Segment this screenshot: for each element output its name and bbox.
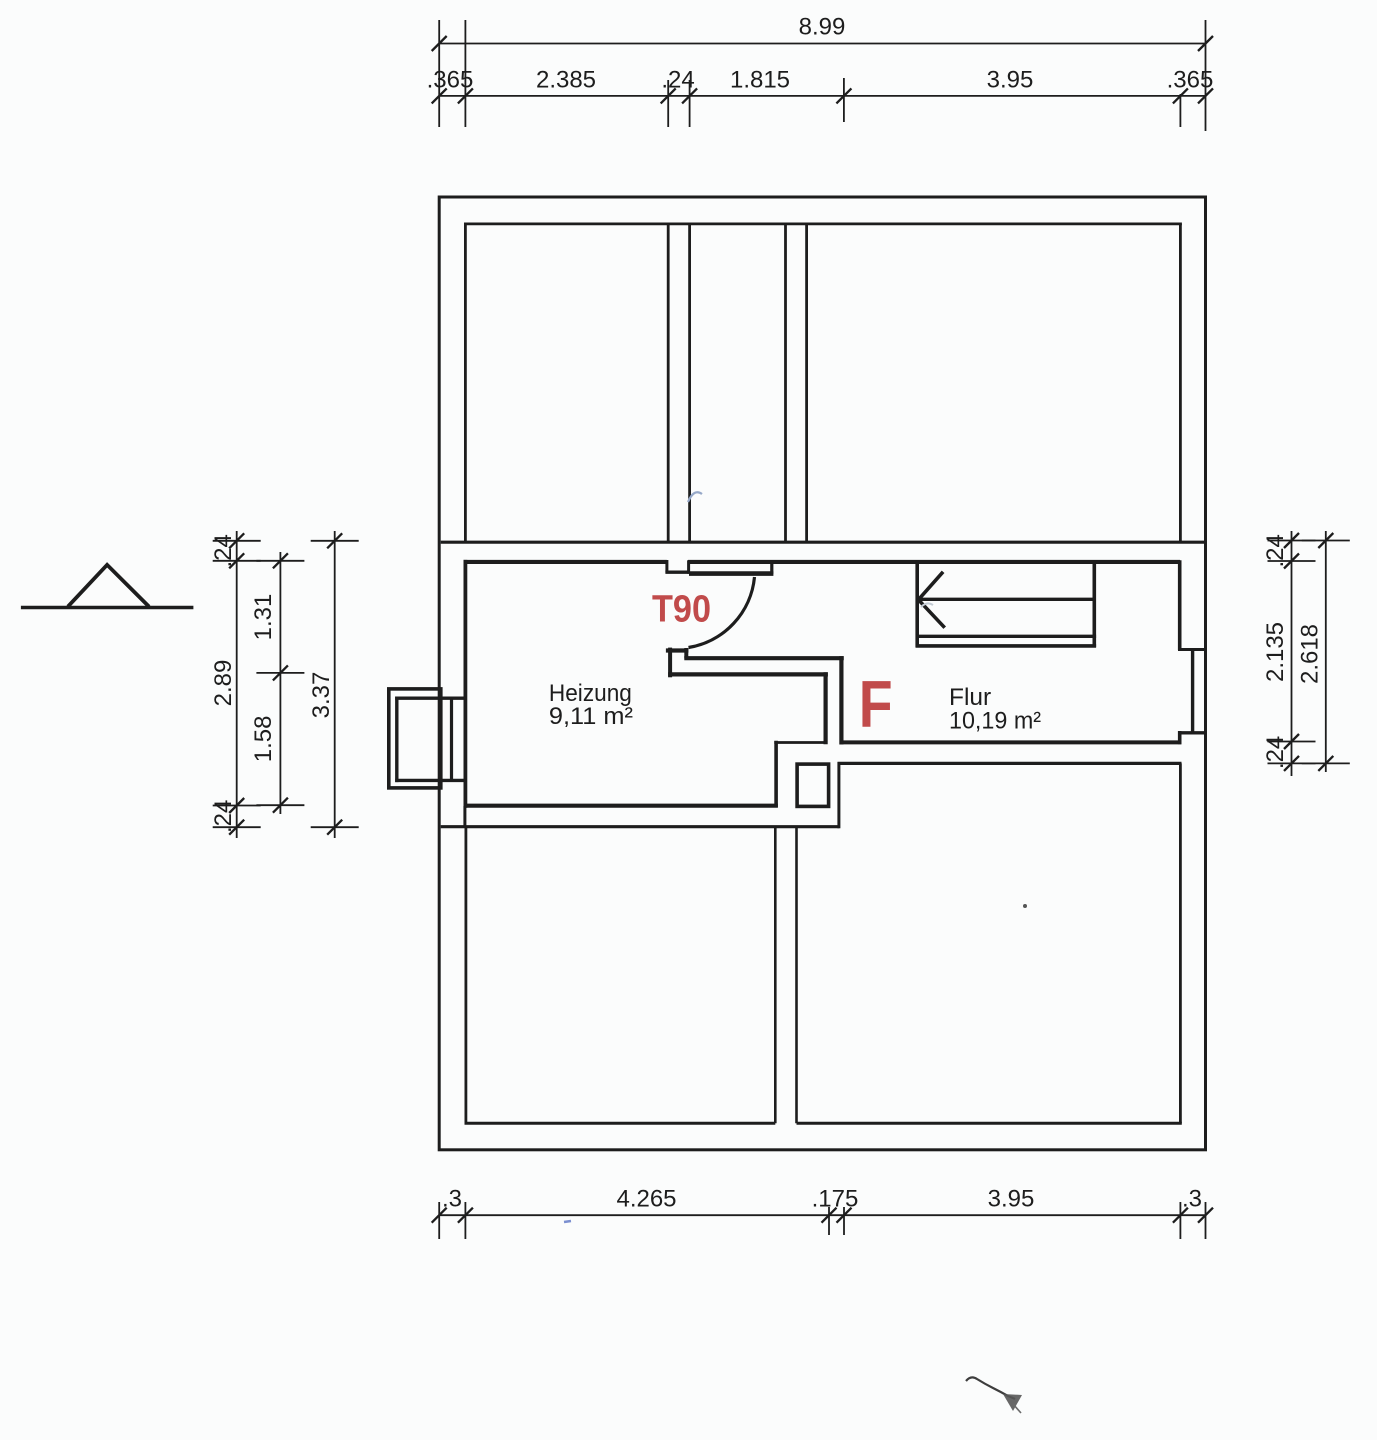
svg-text:2.385: 2.385: [536, 67, 596, 94]
svg-text:.175: .175: [812, 1186, 859, 1213]
svg-text:.365: .365: [1167, 67, 1214, 94]
svg-text:1.815: 1.815: [730, 67, 790, 94]
svg-text:8.99: 8.99: [799, 14, 846, 41]
svg-text:3.95: 3.95: [988, 1186, 1035, 1213]
svg-text:1.31: 1.31: [250, 594, 277, 641]
svg-text:2.135: 2.135: [1262, 622, 1289, 682]
svg-text:3.95: 3.95: [987, 67, 1034, 94]
svg-text:2.89: 2.89: [210, 660, 237, 707]
svg-text:9,11 m²: 9,11 m²: [549, 703, 633, 730]
svg-text:10,19 m²: 10,19 m²: [949, 707, 1041, 734]
svg-text:.24: .24: [1262, 534, 1289, 567]
svg-text:1.58: 1.58: [250, 716, 277, 763]
svg-text:F: F: [859, 667, 893, 741]
svg-text:.3: .3: [1182, 1186, 1202, 1213]
svg-text:4.265: 4.265: [616, 1186, 676, 1213]
svg-text:.24: .24: [210, 800, 237, 833]
svg-text:.365: .365: [427, 67, 474, 94]
svg-text:.24: .24: [210, 534, 237, 567]
svg-text:.3: .3: [442, 1186, 462, 1213]
svg-text:.24: .24: [661, 67, 694, 94]
svg-text:3.37: 3.37: [308, 672, 335, 719]
svg-text:.24: .24: [1262, 736, 1289, 769]
svg-text:T90: T90: [652, 589, 711, 631]
svg-text:2.618: 2.618: [1297, 624, 1324, 684]
